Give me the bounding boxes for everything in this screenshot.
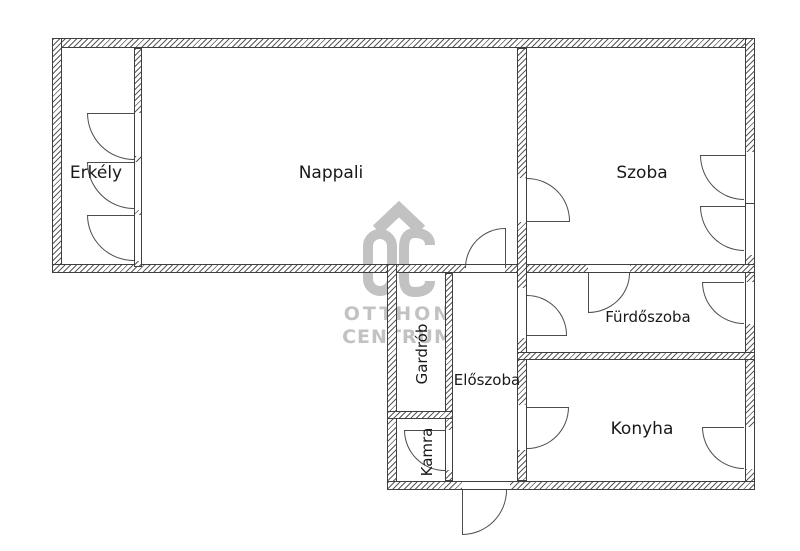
kitchen-window-arc bbox=[702, 427, 744, 469]
bath-top-door-arc bbox=[588, 273, 630, 313]
room-label-nappali: Nappali bbox=[299, 163, 364, 183]
szoba-window-divider bbox=[745, 203, 755, 204]
opening-bath-top-door bbox=[588, 264, 630, 273]
kitchen-door-arc bbox=[527, 407, 569, 449]
nappali-door-arc bbox=[465, 228, 505, 268]
balcony-window-1-arc bbox=[87, 113, 134, 160]
opening-bath-window bbox=[745, 282, 755, 324]
wall-outer-top bbox=[52, 38, 755, 48]
watermark-line2: CENTRUM bbox=[342, 326, 454, 348]
wall-mid-horizontal bbox=[52, 264, 755, 273]
watermark-line1: OTTHON bbox=[344, 303, 452, 325]
wall-gardrob-kamra bbox=[387, 411, 453, 419]
room-label-konyha: Konyha bbox=[611, 419, 674, 439]
room-label-furdoszoba: Fürdőszoba bbox=[605, 308, 691, 326]
nappali-door-leaf bbox=[505, 228, 506, 268]
otthon-centrum-logo-icon bbox=[350, 198, 450, 308]
szoba-window-1-arc bbox=[700, 155, 744, 200]
room-label-eloszoba: Előszoba bbox=[454, 371, 520, 389]
entrance-door-arc bbox=[462, 490, 507, 535]
opening-entrance-door bbox=[462, 481, 510, 490]
bath-left-door-arc bbox=[527, 295, 567, 335]
room-label-gardrob: Gardrób bbox=[413, 324, 431, 385]
room-label-erkely: Erkély bbox=[70, 163, 122, 183]
floor-plan: OTTHON CENTRUM Er bbox=[0, 0, 800, 551]
opening-szoba-door bbox=[517, 178, 527, 222]
opening-balcony-window-3 bbox=[134, 215, 142, 261]
balcony-window-3-arc bbox=[87, 215, 134, 261]
wall-outer-bottom bbox=[387, 481, 755, 490]
szoba-door-leaf bbox=[527, 221, 570, 222]
wall-bath-kitchen bbox=[517, 352, 755, 360]
room-label-kamra: Kamra bbox=[418, 428, 436, 477]
szoba-door-arc bbox=[527, 178, 570, 221]
opening-bath-left-door bbox=[517, 288, 527, 338]
opening-balcony-window-2 bbox=[134, 162, 142, 210]
room-label-szoba: Szoba bbox=[616, 163, 667, 183]
wall-outer-left bbox=[52, 38, 62, 273]
opening-balcony-window-1 bbox=[134, 113, 142, 156]
opening-kitchen-window bbox=[745, 427, 755, 469]
bath-left-door-leaf bbox=[527, 335, 567, 336]
otthon-centrum-logo bbox=[350, 198, 450, 312]
wall-lower-left bbox=[387, 264, 397, 490]
szoba-window-2-arc bbox=[700, 206, 744, 251]
opening-kamra-door bbox=[445, 430, 453, 470]
opening-kitchen-door bbox=[517, 405, 527, 450]
bath-window-arc bbox=[702, 282, 744, 324]
